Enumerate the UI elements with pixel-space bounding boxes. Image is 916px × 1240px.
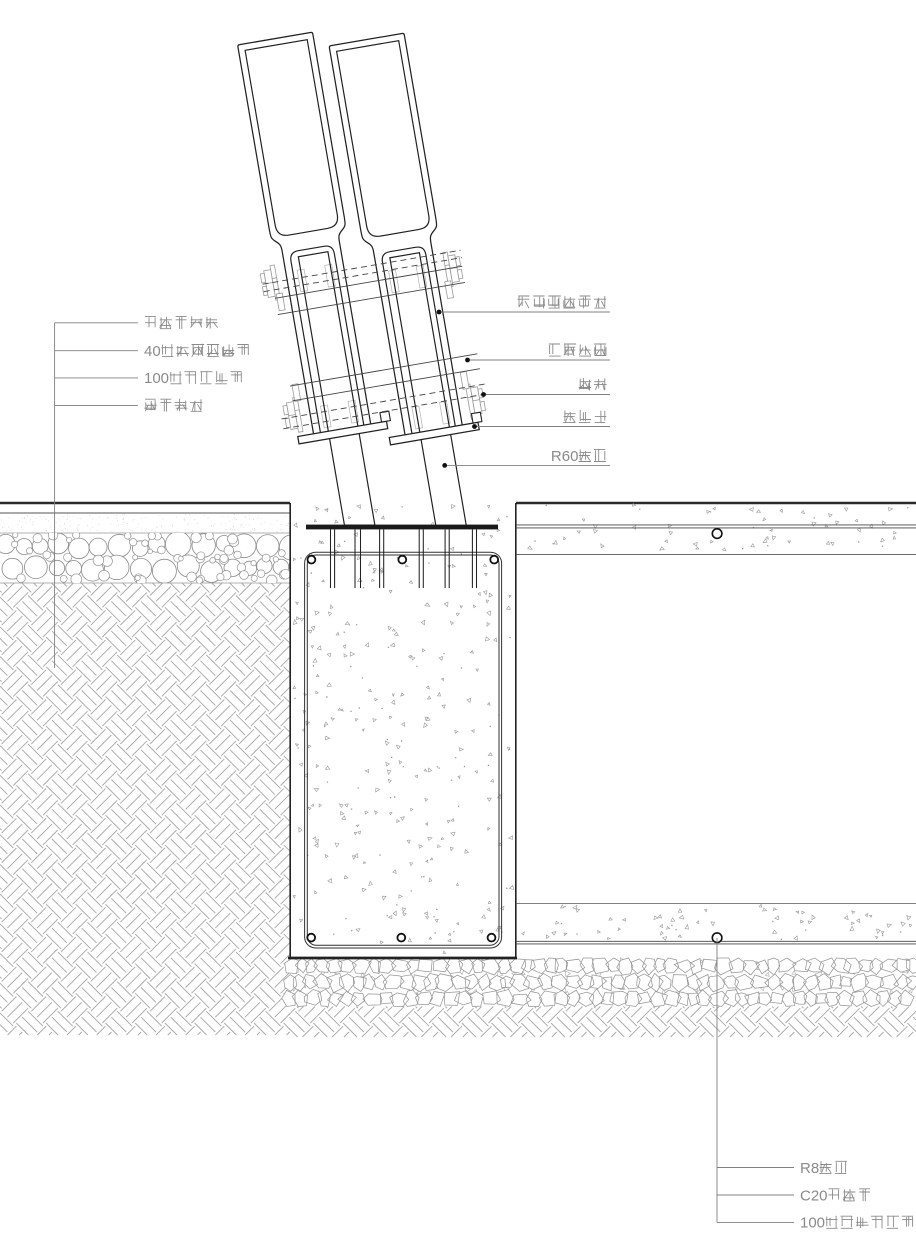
svg-text:R60: R60 [551, 448, 579, 465]
svg-text:R8: R8 [800, 1160, 819, 1177]
svg-text:100: 100 [144, 370, 169, 387]
svg-text:C20: C20 [800, 1187, 828, 1204]
svg-text:100: 100 [800, 1215, 825, 1232]
svg-text:40: 40 [144, 343, 161, 360]
